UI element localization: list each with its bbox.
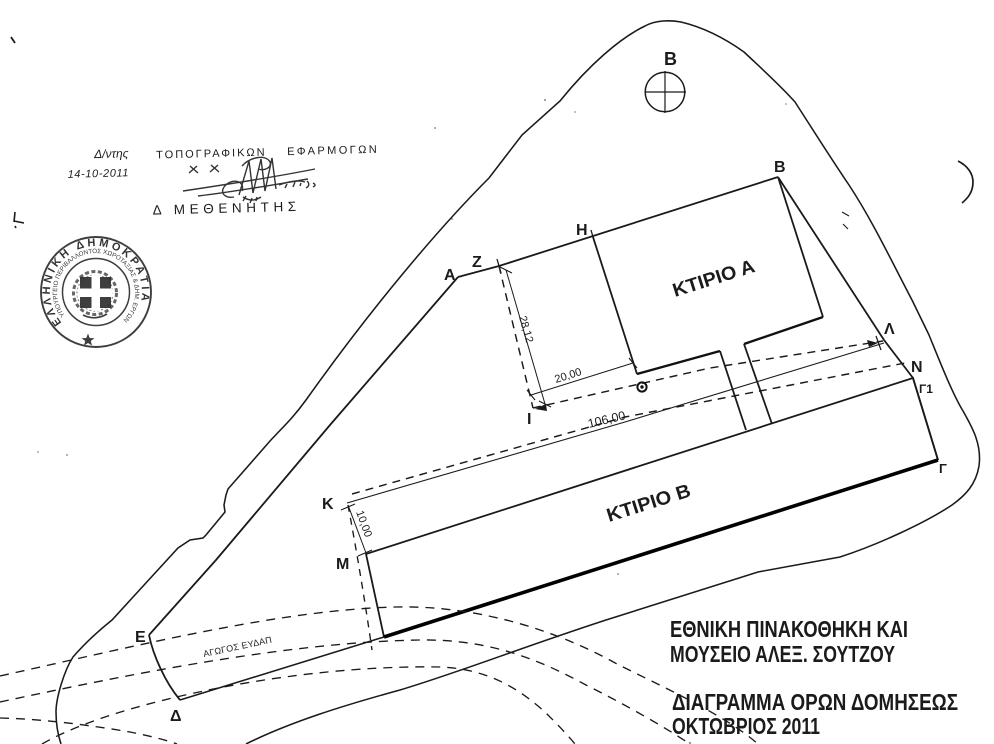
svg-text:Γ1: Γ1: [919, 382, 933, 396]
svg-text:Η: Η: [576, 222, 588, 239]
svg-text:Ν: Ν: [911, 359, 923, 376]
svg-text:ΟΚΤΩΒΡΙΟΣ 2011: ΟΚΤΩΒΡΙΟΣ 2011: [672, 713, 820, 739]
svg-text:Γ: Γ: [939, 461, 947, 476]
svg-text:Β: Β: [664, 49, 677, 69]
svg-text:ΕΘΝΙΚΗ ΠΙΝΑΚΟΘΗΚΗ ΚΑΙ: ΕΘΝΙΚΗ ΠΙΝΑΚΟΘΗΚΗ ΚΑΙ: [670, 616, 908, 642]
svg-text:ΜΟΥΣΕΙΟ ΑΛΕΞ. ΣΟΥΤΖΟΥ: ΜΟΥΣΕΙΟ ΑΛΕΞ. ΣΟΥΤΖΟΥ: [670, 641, 895, 667]
svg-text:Δ/ντης: Δ/ντης: [93, 146, 129, 161]
svg-text:ΔΙΑΓΡΑΜΜΑ ΟΡΩΝ ΔΟΜΗΣΕΩΣ: ΔΙΑΓΡΑΜΜΑ ΟΡΩΝ ΔΟΜΗΣΕΩΣ: [672, 689, 958, 715]
svg-text:ΕΦΑΡΜΟΓΩΝ: ΕΦΑΡΜΟΓΩΝ: [287, 144, 379, 158]
svg-text:Λ: Λ: [884, 321, 895, 338]
svg-text:14-10-2011: 14-10-2011: [67, 167, 129, 181]
svg-text:Ι: Ι: [527, 411, 531, 428]
svg-text:Α: Α: [444, 267, 456, 284]
svg-text:Ε: Ε: [135, 629, 146, 646]
svg-text:Μ: Μ: [336, 556, 349, 573]
svg-text:Δ: Δ: [170, 708, 182, 725]
svg-text:Κ: Κ: [322, 496, 334, 513]
svg-text:Β: Β: [774, 159, 786, 176]
svg-text:Ζ: Ζ: [472, 254, 482, 271]
